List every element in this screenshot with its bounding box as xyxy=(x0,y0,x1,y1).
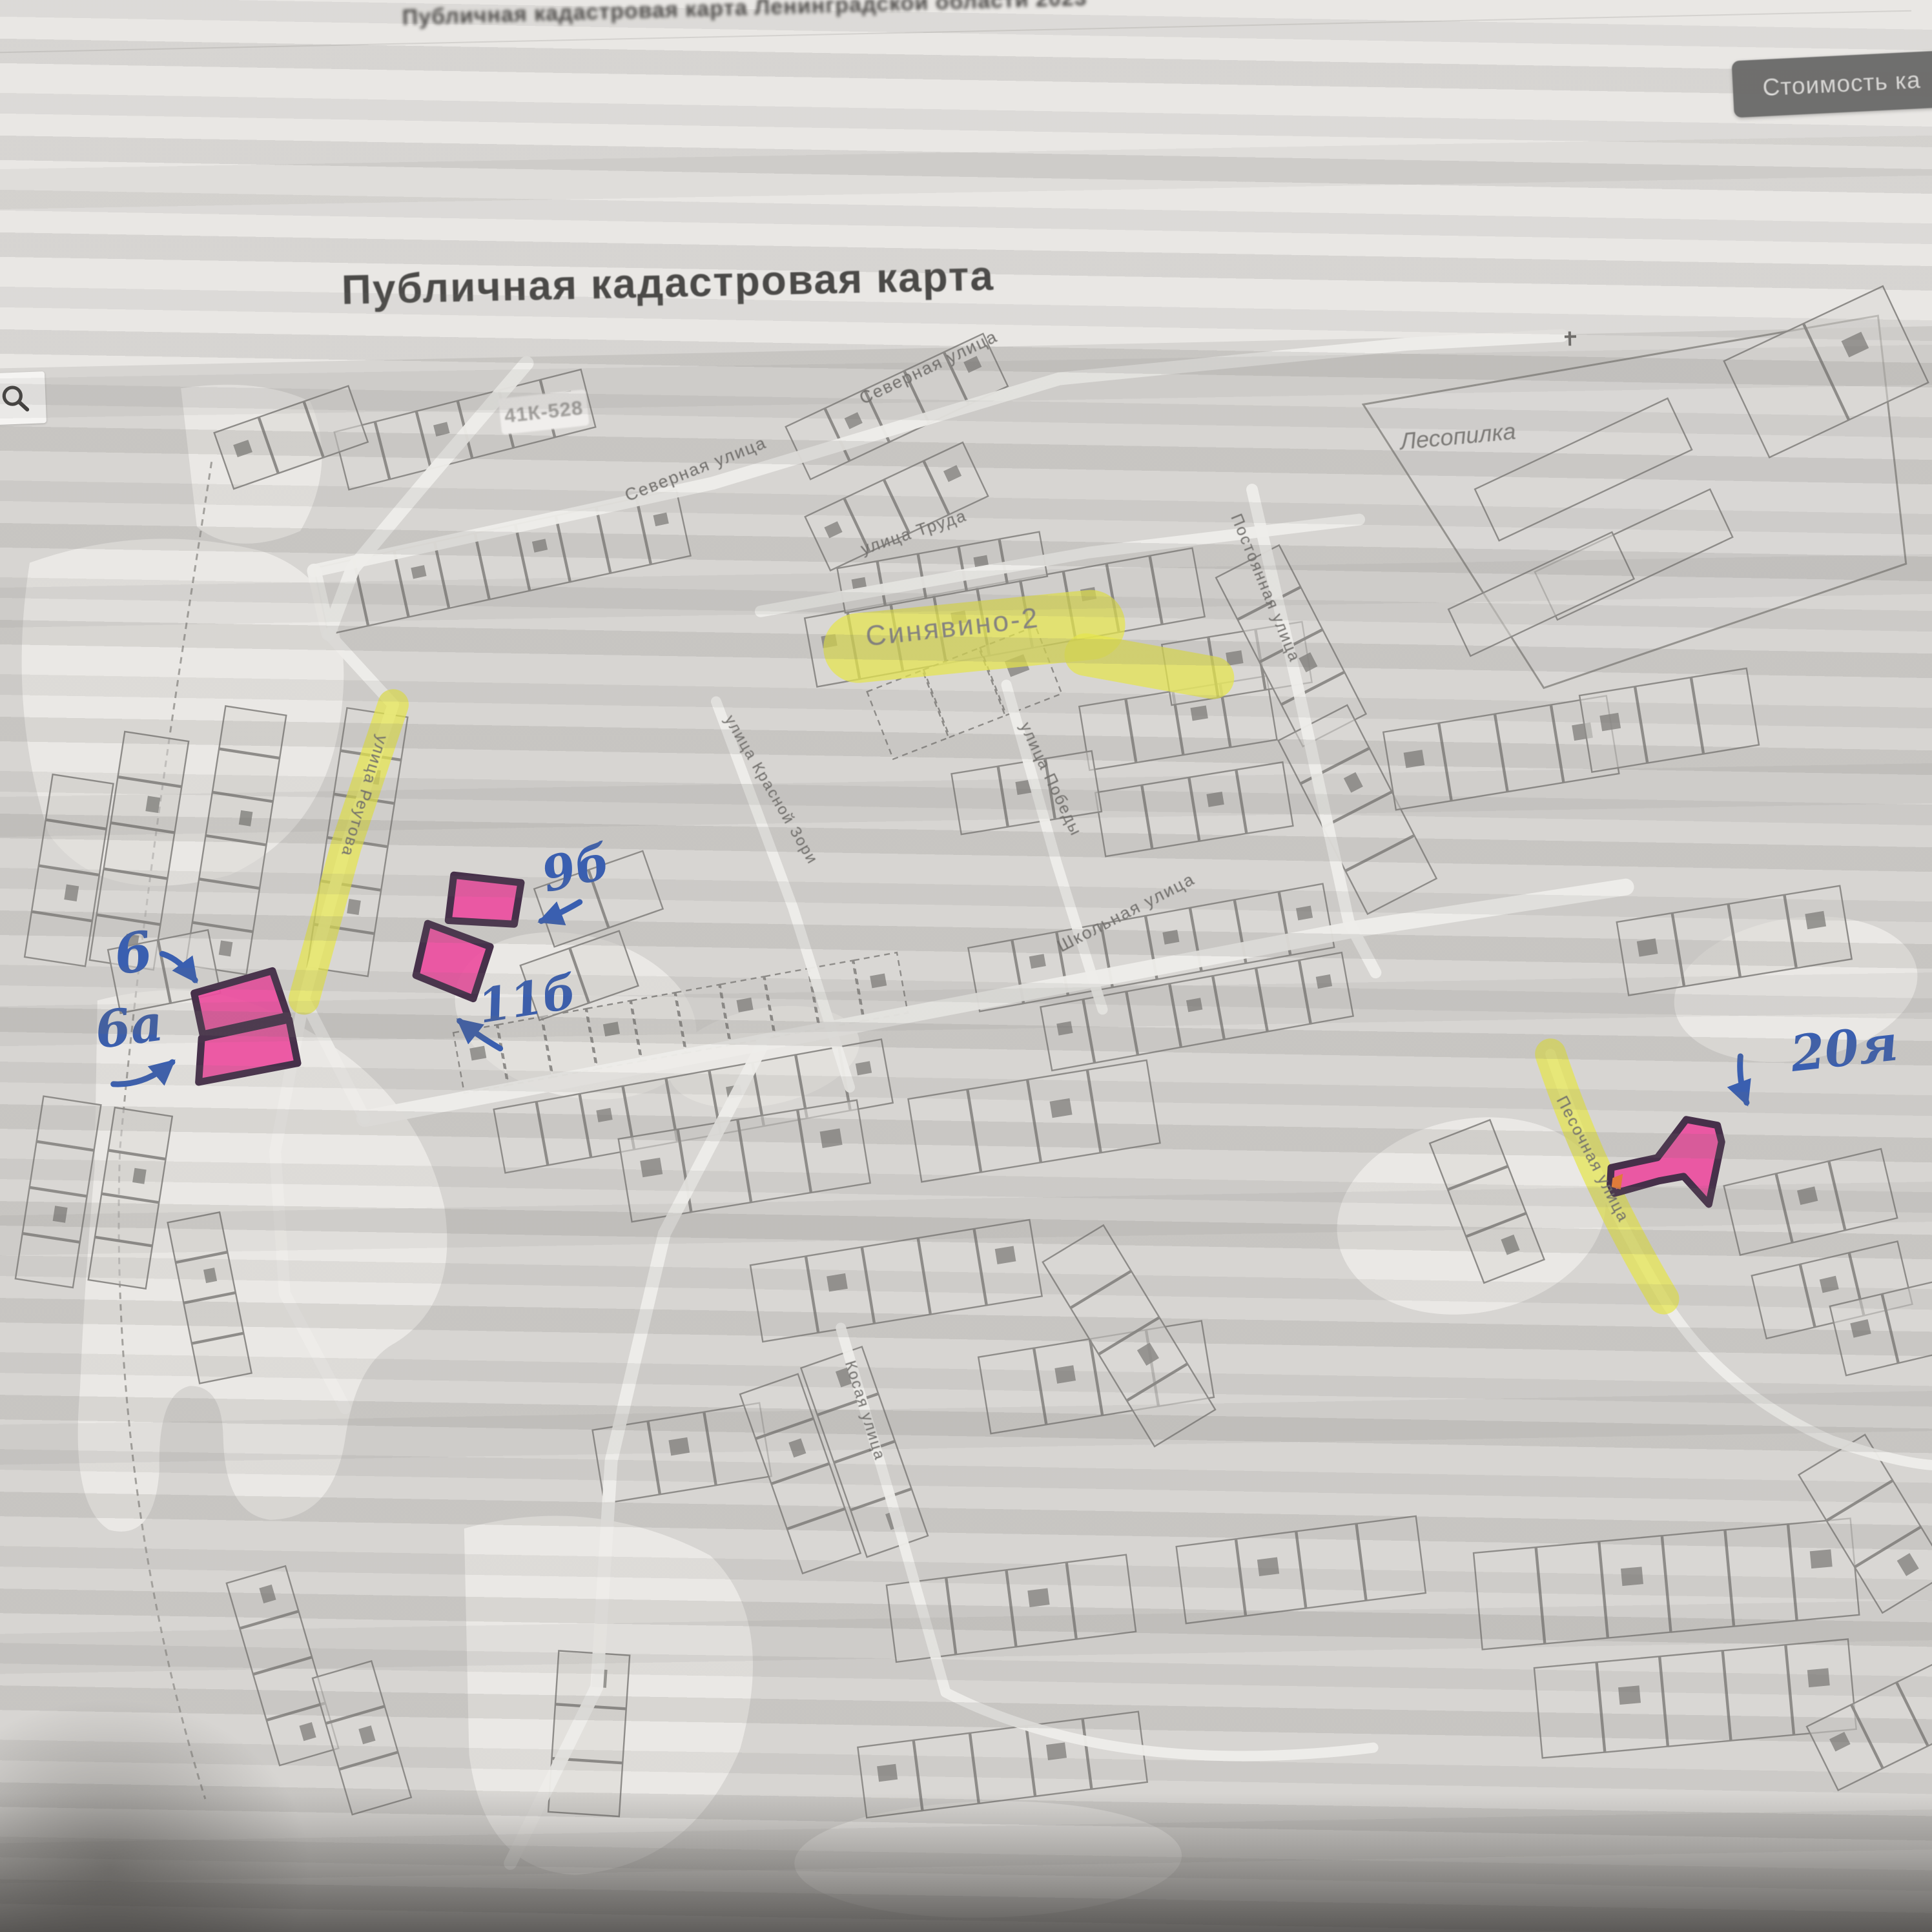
cadastral-map xyxy=(0,0,1932,1932)
search-icon xyxy=(0,382,31,415)
search-box[interactable] xyxy=(0,371,46,426)
printed-page-photo: Публичная кадастровая карта Ленинградско… xyxy=(0,0,1932,1932)
handwritten-label-20ya: 20я xyxy=(1787,1014,1900,1083)
page-content: Публичная кадастровая карта Ленинградско… xyxy=(0,0,1932,1932)
handwritten-label-6a: 6а xyxy=(92,994,166,1060)
parcel-9b xyxy=(447,874,522,925)
